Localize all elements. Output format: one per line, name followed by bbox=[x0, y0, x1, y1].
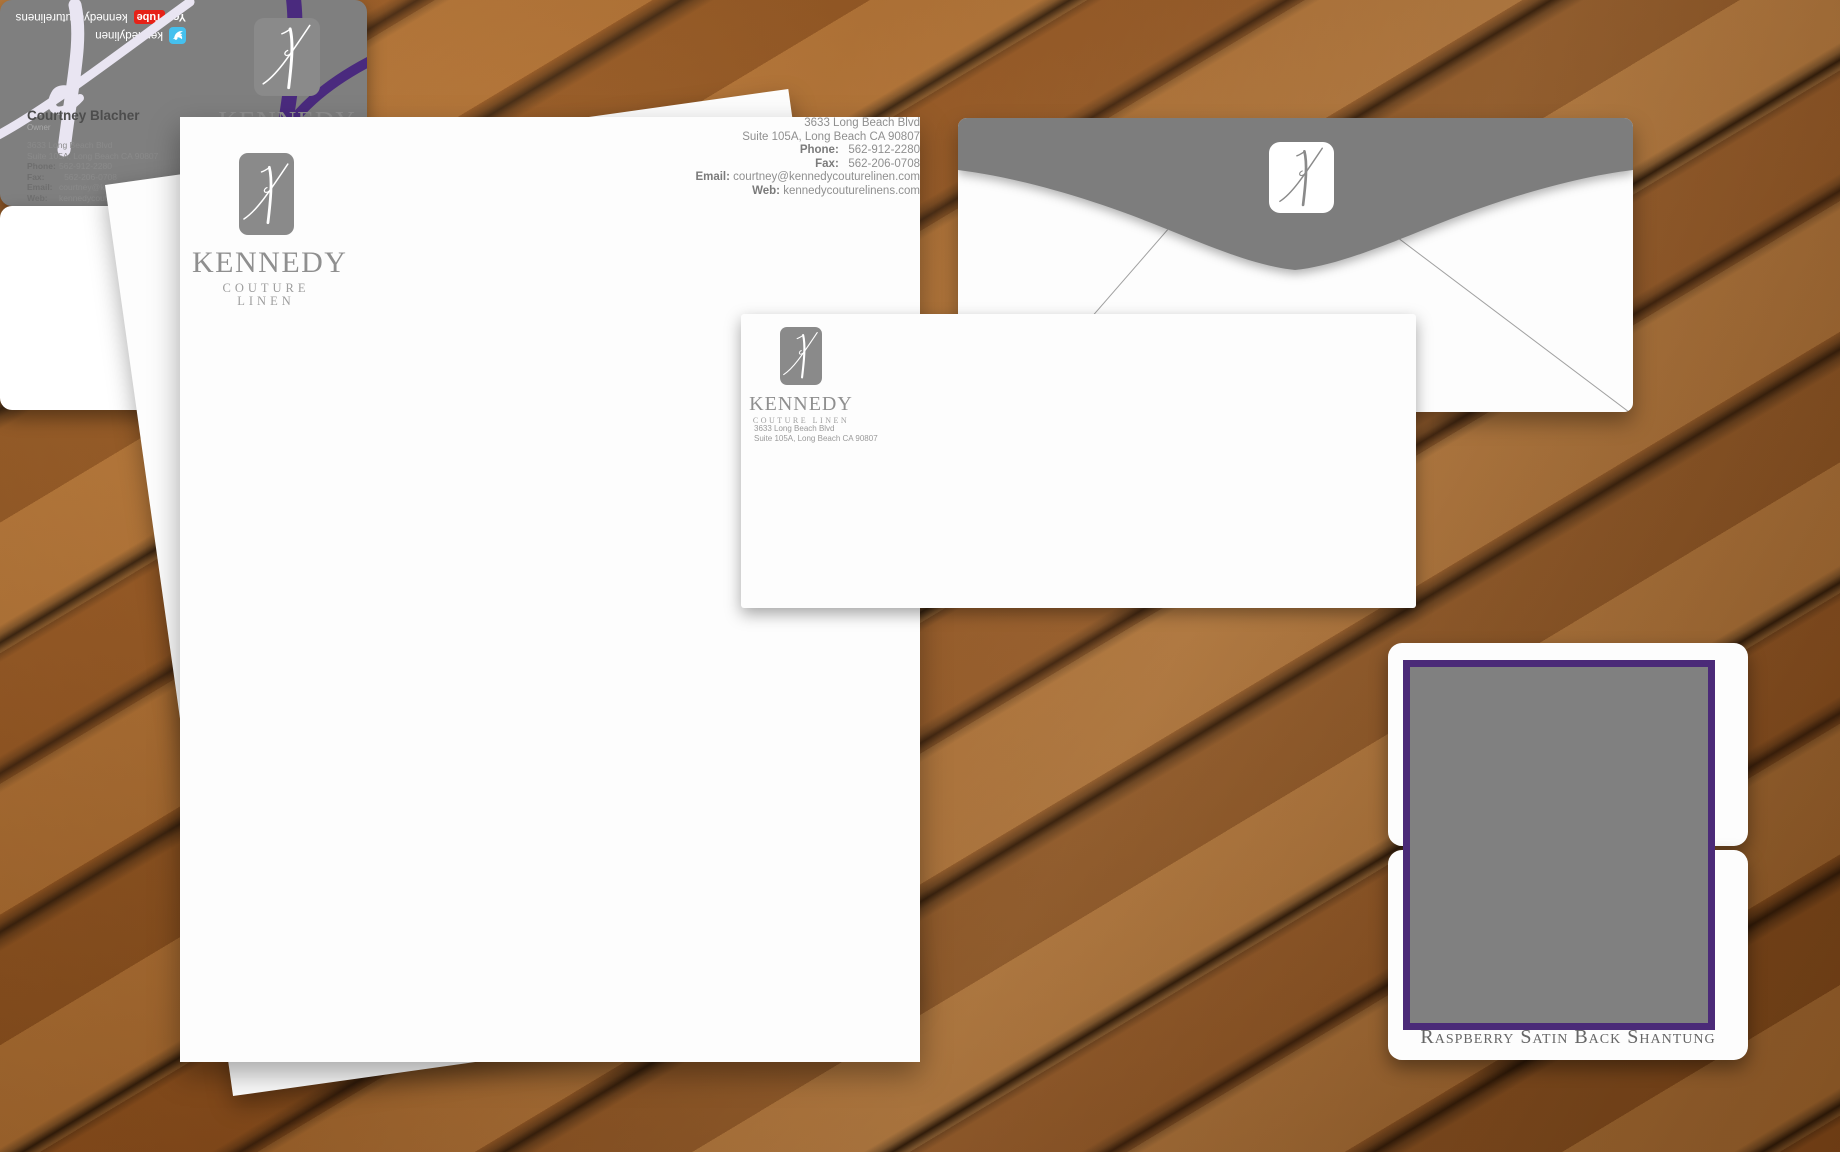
return-address-block: 3633 Long Beach Blvd Suite 105A, Long Be… bbox=[754, 424, 878, 444]
script-k-icon bbox=[1274, 146, 1329, 208]
fabric-name-caption: Raspberry Satin Back Shantung bbox=[1392, 1026, 1744, 1049]
logo-tile bbox=[239, 153, 294, 235]
envelope-front: KENNEDY COUTURE LINEN 3633 Long Beach Bl… bbox=[741, 314, 1416, 608]
brand-logo-block: KENNEDY COUTURE LINEN bbox=[749, 327, 853, 425]
address-line: 3633 Long Beach Blvd bbox=[180, 117, 920, 131]
address-line: Suite 105A, Long Beach CA 90807 bbox=[754, 434, 878, 444]
address-line: 3633 Long Beach Blvd bbox=[754, 424, 878, 434]
brand-logo-block: KENNEDY COUTURE LINEN bbox=[192, 153, 340, 307]
fabric-swatch bbox=[1403, 660, 1715, 1030]
flap-logo-tile bbox=[1269, 142, 1334, 213]
brand-name: KENNEDY bbox=[749, 394, 853, 414]
script-k-icon bbox=[783, 330, 818, 381]
address-line: Suite 105A, Long Beach CA 90807 bbox=[180, 131, 920, 145]
logo-tile bbox=[780, 327, 822, 385]
brand-tagline: COUTURE LINEN bbox=[192, 282, 340, 307]
stationery-mockup-scene: KENNEDY COUTURE LINEN 3633 Long Beach Bl… bbox=[0, 0, 1840, 1152]
script-k-icon bbox=[243, 158, 289, 230]
brand-name: KENNEDY bbox=[192, 248, 340, 278]
